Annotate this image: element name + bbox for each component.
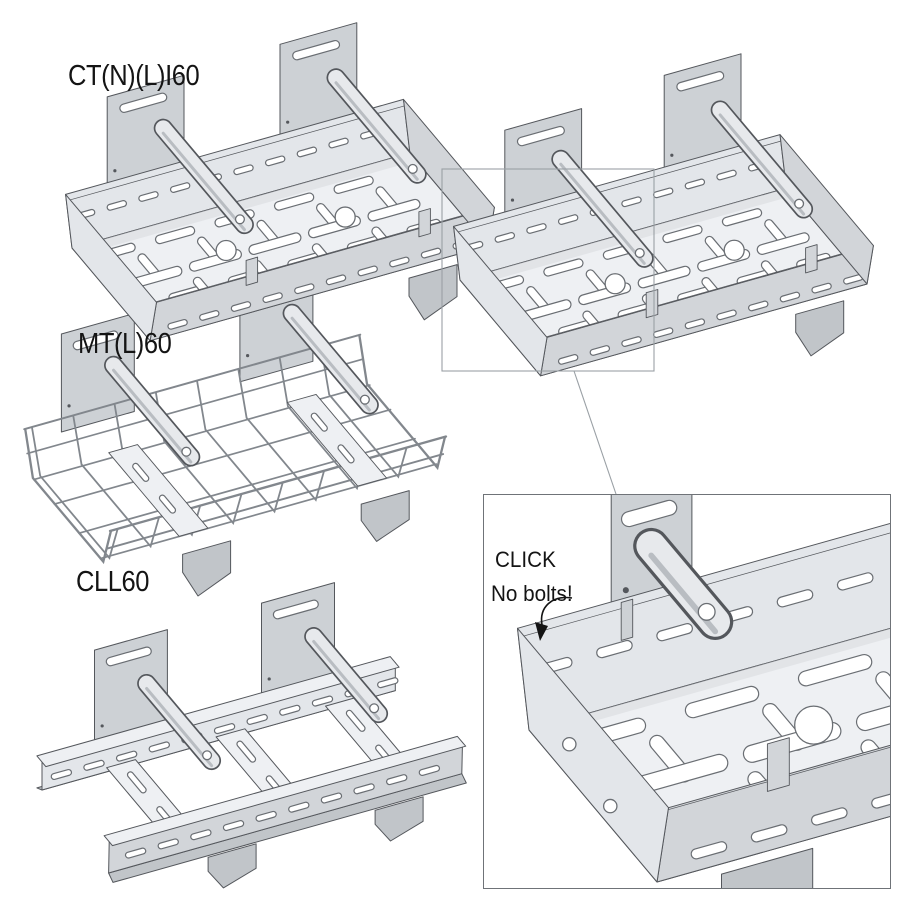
catalog-illustration-page: CT(N)(L)I60 MT(L)60 CLL60 CLICK No bolts… xyxy=(0,0,908,908)
inset-click-label: CLICK xyxy=(495,547,556,573)
inset-tray-detail xyxy=(518,495,891,888)
product-label-ct: CT(N)(L)I60 xyxy=(68,60,199,93)
detail-leader-line xyxy=(574,371,616,494)
product-label-mt: MT(L)60 xyxy=(78,328,171,361)
product-label-cll: CLL60 xyxy=(76,566,149,599)
inset-detail-panel: CLICK No bolts! xyxy=(483,494,891,889)
cable-ladder-cll-illustration xyxy=(37,583,466,888)
inset-no-bolts-label: No bolts! xyxy=(491,581,573,607)
perforated-tray-right-illustration xyxy=(454,54,874,376)
